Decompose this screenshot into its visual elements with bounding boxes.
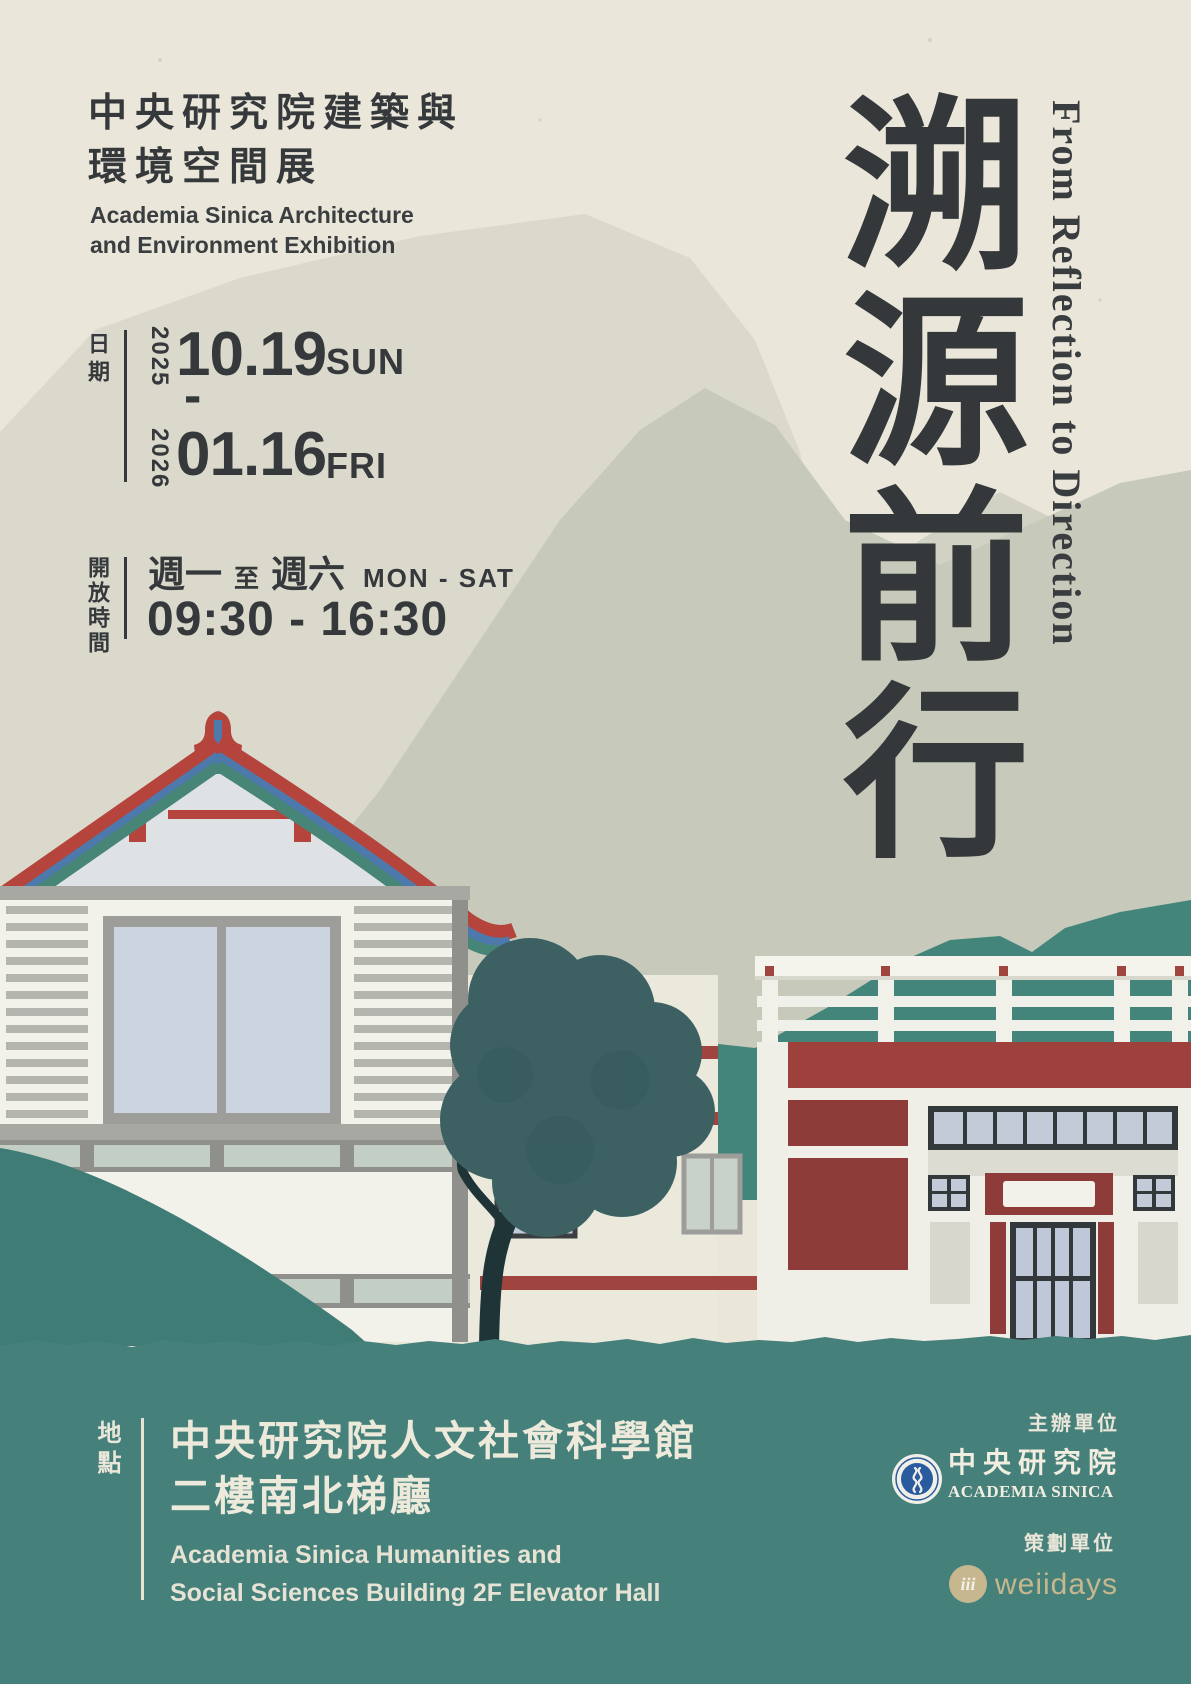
location-en-line1: Academia Sinica Humanities and <box>170 1543 562 1568</box>
planner-name: weiidays <box>995 1570 1118 1600</box>
academia-sinica-seal-icon <box>890 1452 944 1506</box>
weiidays-mark-text: iii <box>960 1574 975 1594</box>
date-end-day: FRI <box>326 448 387 484</box>
location-zh-line1: 中央研究院人文社會科學館 <box>170 1421 698 1462</box>
date-start-day: SUN <box>326 344 405 380</box>
organizer-label: 主辦單位 <box>1028 1414 1120 1434</box>
planner-label: 策劃單位 <box>1024 1534 1116 1554</box>
location-label: 地點 <box>94 1420 118 1480</box>
organizer-name-en: ACADEMIA SINICA <box>948 1483 1114 1500</box>
location-zh-line2: 二樓南北梯廳 <box>170 1476 434 1517</box>
date-end-value: 01.16 <box>176 424 326 486</box>
organizer-name-zh: 中央研究院 <box>948 1450 1123 1478</box>
main-title-vertical-en: From Reflection to Direction <box>1046 100 1086 647</box>
exhibition-poster: 中央研究院建築與 環境空間展 Academia Sinica Architect… <box>0 0 1191 1684</box>
hours-divider-line <box>124 557 127 639</box>
weiidays-mark-icon: iii <box>948 1564 988 1604</box>
header-title-zh-line2: 環境空間展 <box>88 148 323 187</box>
header-title-zh-line1: 中央研究院建築與 <box>88 94 464 133</box>
date-start-year: 2025 <box>147 326 171 387</box>
date-divider-line <box>124 330 127 482</box>
hours-weekdays-en: MON - SAT <box>363 565 515 591</box>
location-divider-line <box>141 1418 144 1600</box>
hours-weekday-end: 週六 <box>271 556 345 593</box>
hours-weekday-row: 週一 至 週六 MON - SAT <box>148 556 515 593</box>
date-label: 日期 <box>86 332 108 388</box>
hours-weekday-to: 至 <box>234 567 259 592</box>
header-title-en-line2: and Environment Exhibition <box>90 231 395 260</box>
hours-weekday-start: 週一 <box>148 556 222 593</box>
location-en-line2: Social Sciences Building 2F Elevator Hal… <box>170 1581 660 1606</box>
header-title-en-line1: Academia Sinica Architecture <box>90 201 414 230</box>
date-end-year: 2026 <box>147 428 171 489</box>
hours-label: 開放時間 <box>86 556 108 656</box>
main-title-vertical-zh: 溯源前行 <box>824 88 1010 872</box>
hours-time-range: 09:30 - 16:30 <box>147 596 448 644</box>
